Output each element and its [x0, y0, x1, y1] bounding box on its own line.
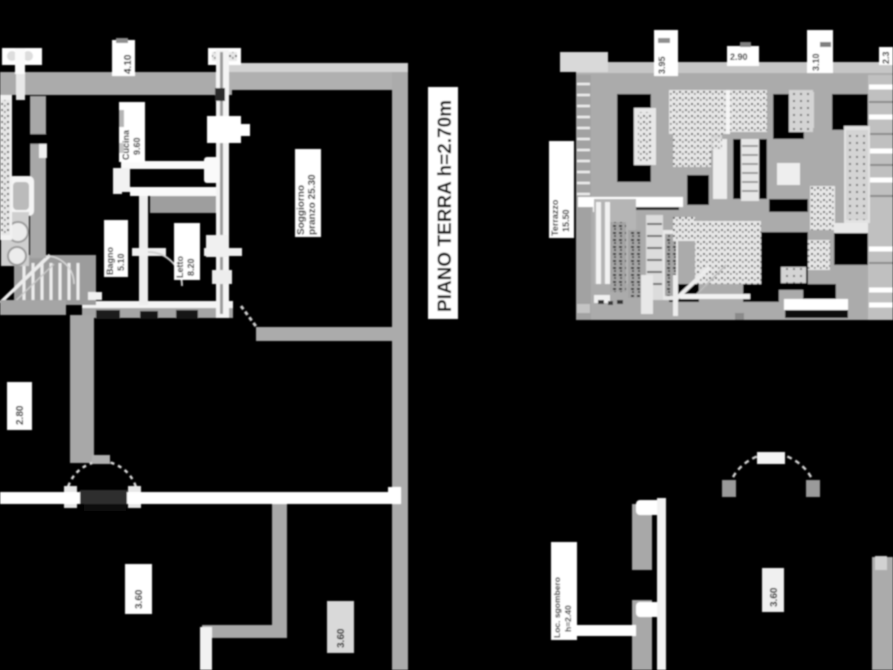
- svg-text:3.60: 3.60: [336, 628, 347, 648]
- svg-text:Cucina: Cucina: [121, 129, 131, 160]
- svg-text:3.60: 3.60: [769, 587, 780, 607]
- svg-text:Soggiorno: Soggiorno: [296, 185, 307, 235]
- svg-text:9.60: 9.60: [132, 137, 142, 155]
- svg-text:3.10: 3.10: [811, 53, 821, 71]
- svg-text:8.20: 8.20: [186, 258, 196, 276]
- svg-text:Bagno: Bagno: [105, 247, 115, 276]
- svg-text:4.10: 4.10: [123, 54, 134, 74]
- svg-text:Terrazzo: Terrazzo: [550, 199, 560, 236]
- svg-text:3.95: 3.95: [657, 56, 667, 74]
- svg-text:15.50: 15.50: [561, 209, 571, 232]
- svg-text:Loc. sgombero: Loc. sgombero: [552, 577, 562, 638]
- svg-text:pranzo 25.30: pranzo 25.30: [307, 174, 318, 235]
- svg-text:2.3: 2.3: [881, 51, 891, 64]
- svg-text:2.90: 2.90: [730, 52, 748, 62]
- svg-text:5.10: 5.10: [116, 253, 126, 271]
- svg-text:3.60: 3.60: [134, 589, 145, 609]
- svg-text:Letto: Letto: [175, 256, 185, 278]
- svg-text:h=2.40: h=2.40: [563, 605, 573, 632]
- svg-text:PIANO TERRA h=2.70m: PIANO TERRA h=2.70m: [435, 100, 456, 312]
- svg-text:2.80: 2.80: [15, 405, 26, 425]
